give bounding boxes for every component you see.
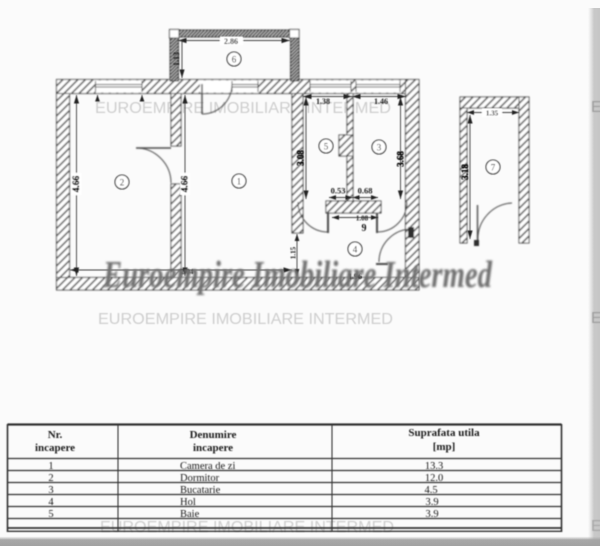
svg-text:2: 2: [120, 178, 125, 188]
svg-text:Bucatarie: Bucatarie: [180, 485, 221, 496]
svg-text:Euroempire Imobiliare Intermed: Euroempire Imobiliare Intermed: [102, 254, 493, 296]
svg-text:3: 3: [377, 143, 382, 153]
svg-text:4.66: 4.66: [181, 175, 191, 192]
svg-text:3.9: 3.9: [425, 509, 438, 520]
svg-text:1.13: 1.13: [172, 52, 181, 66]
svg-text:EUROEMPIRE: EUROEMPIRE: [591, 99, 600, 116]
svg-text:Dormitor: Dormitor: [180, 473, 220, 484]
svg-text:6: 6: [232, 55, 237, 65]
svg-text:4.66: 4.66: [72, 175, 82, 192]
svg-text:9: 9: [362, 223, 367, 234]
svg-text:3.08: 3.08: [296, 150, 306, 166]
svg-text:Baie: Baie: [180, 509, 200, 520]
svg-text:3.68: 3.68: [396, 151, 406, 167]
svg-text:Camera de zi: Camera de zi: [180, 461, 235, 472]
svg-text:4: 4: [48, 497, 54, 508]
svg-text:2: 2: [48, 473, 53, 484]
svg-text:13.3: 13.3: [425, 461, 443, 472]
svg-text:3.18: 3.18: [460, 164, 470, 180]
svg-text:1: 1: [48, 461, 53, 472]
svg-text:3: 3: [48, 485, 53, 496]
svg-text:EUROEMPIRE IMOBILIARE INTERMED: EUROEMPIRE IMOBILIARE INTERMED: [98, 311, 393, 328]
svg-text:0.53: 0.53: [331, 186, 346, 196]
svg-text:7: 7: [491, 163, 496, 173]
svg-text:Suprafata utila: Suprafata utila: [408, 427, 480, 439]
svg-text:5: 5: [324, 142, 329, 152]
svg-text:incapere: incapere: [35, 442, 75, 454]
svg-text:1.46: 1.46: [374, 97, 388, 106]
svg-text:Hol: Hol: [180, 497, 196, 508]
svg-text:[mp]: [mp]: [433, 441, 456, 453]
svg-text:4: 4: [353, 245, 358, 255]
svg-text:0.68: 0.68: [358, 186, 373, 196]
svg-text:1: 1: [237, 177, 242, 187]
svg-text:3.9: 3.9: [425, 497, 438, 508]
svg-text:12.0: 12.0: [425, 473, 443, 484]
svg-text:1.35: 1.35: [486, 110, 499, 118]
svg-text:2.86: 2.86: [224, 37, 238, 46]
svg-text:5: 5: [48, 509, 53, 520]
svg-text:EUROEMPIRE: EUROEMPIRE: [591, 310, 600, 327]
svg-text:Nr.: Nr.: [48, 429, 63, 441]
svg-text:incapere: incapere: [193, 442, 233, 454]
svg-text:1.08: 1.08: [356, 215, 369, 223]
svg-text:1.38: 1.38: [316, 97, 330, 106]
svg-text:4.5: 4.5: [424, 485, 437, 496]
svg-text:EUROEMPIRE: EUROEMPIRE: [591, 518, 600, 535]
svg-text:Denumire: Denumire: [190, 429, 237, 441]
